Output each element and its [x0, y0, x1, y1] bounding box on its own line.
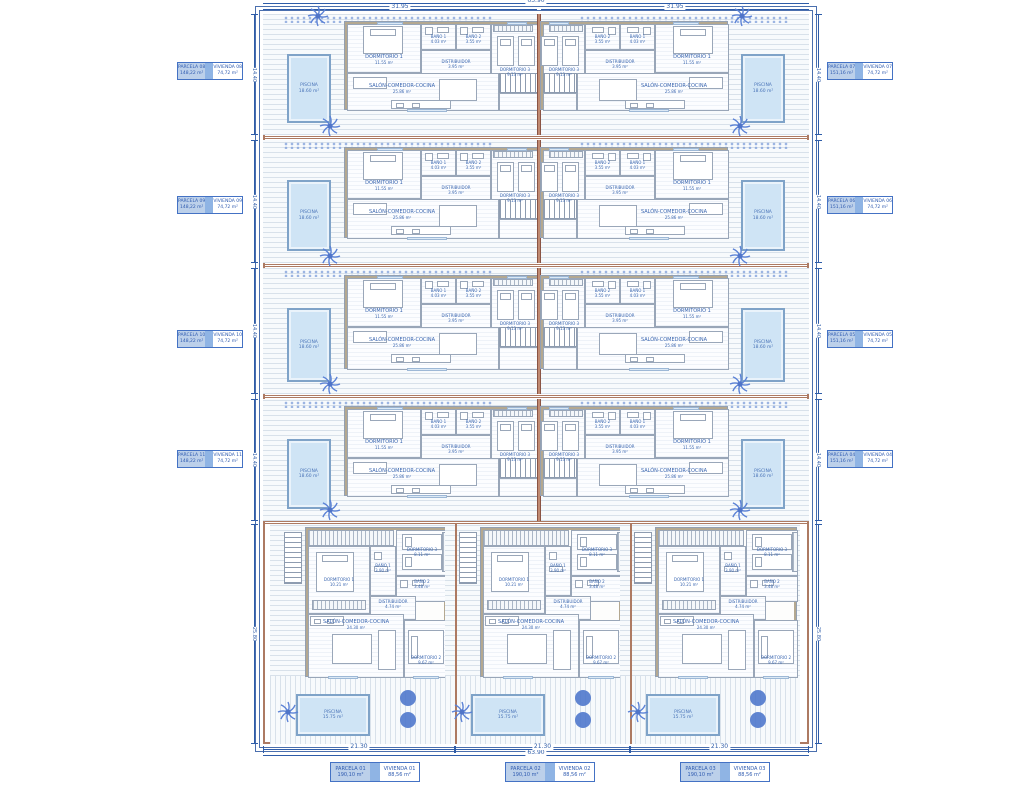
- vivienda-area: 74,72 m²: [213, 205, 242, 211]
- wardrobe-icon: [549, 25, 583, 32]
- room-area: 24.30 m²: [485, 626, 577, 631]
- sink-icon: [437, 153, 449, 159]
- room-area: 10.21 m²: [308, 583, 370, 588]
- palm-tree-icon: [318, 244, 342, 268]
- dim-left-row-4-tick: [251, 520, 258, 521]
- dining-table-icon: [507, 634, 547, 664]
- parcela-area: 190,10 m²: [506, 772, 545, 779]
- double-bed-icon: [673, 280, 713, 308]
- room-area: 3.55 m²: [585, 294, 620, 299]
- pool-label: PISCINA18.60 m²: [753, 340, 774, 351]
- dim-right-row-4-tick: [815, 520, 822, 521]
- shower-icon: [592, 153, 604, 159]
- palm-tree-icon: [728, 114, 752, 138]
- wardrobe-icon: [493, 410, 533, 417]
- room-label: DORMITORIO 29.67 m²: [579, 656, 623, 666]
- house: DORMITORIO 111.55 m²BAÑO 14.03 m²BAÑO 23…: [541, 148, 727, 237]
- window: [377, 22, 403, 25]
- wardrobe-icon: [662, 600, 716, 610]
- parcel-label-left-2: PARCELA 09148,22 m²VIVIENDA 0974,72 m²: [177, 196, 243, 214]
- vivienda-area: 74,72 m²: [863, 339, 892, 345]
- dim-right-row-5-tick: [815, 743, 822, 744]
- room-label: DORMITORIO 111.55 m²: [657, 309, 727, 319]
- dim-left-row-5-tick: [251, 743, 258, 744]
- house: DORMITORIO 110.21 m²BAÑO 13.90 m²DORMITO…: [481, 528, 621, 676]
- palm-tree-icon: [730, 4, 754, 28]
- dim-bottom-seg-3-label: 21.30: [709, 744, 730, 750]
- twin-bed-icon: [497, 36, 514, 66]
- house: DORMITORIO 110.21 m²BAÑO 13.90 m²DORMITO…: [306, 528, 446, 676]
- label-spacer: [720, 763, 730, 781]
- terrace-door: [629, 237, 669, 240]
- pool: PISCINA15.75 m²: [646, 694, 720, 736]
- room-label: DORMITORIO 39.13 m²: [491, 322, 539, 332]
- wardrobe-icon: [493, 25, 533, 32]
- parcela-cell: PARCELA 03190,10 m²: [681, 763, 720, 781]
- label-spacer: [205, 331, 213, 347]
- room-area: 3.95 m²: [585, 450, 655, 455]
- pool: PISCINA18.60 m²: [741, 180, 785, 251]
- round-tree-icon: [575, 690, 591, 706]
- twin-bed-icon: [562, 36, 579, 66]
- vivienda-cell: VIVIENDA 0474,72 m²: [863, 451, 892, 467]
- room-label: DISTRIBUIDOR3.95 m²: [421, 445, 491, 455]
- palm-tree-icon: [318, 498, 342, 522]
- dim-right-row-1-label: 14.40: [815, 67, 820, 81]
- room-area: 4.03 m²: [421, 40, 456, 45]
- dim-left-row-1-tick: [251, 14, 258, 15]
- vivienda-area: 74,72 m²: [213, 71, 242, 77]
- room-area: 25.86 m²: [629, 90, 719, 95]
- room-lavadero: [499, 93, 539, 111]
- parcela-cell: PARCELA 02190,10 m²: [506, 763, 545, 781]
- pool-label: PISCINA18.60 m²: [299, 210, 320, 221]
- pool-label: PISCINA18.60 m²: [753, 210, 774, 221]
- house: DORMITORIO 110.21 m²BAÑO 13.90 m²DORMITO…: [656, 528, 796, 676]
- twin-bed-icon: [518, 421, 535, 451]
- site-plan-canvas: 63.90 31.95 31.95 63.90 PISCINA18.60 m²D…: [0, 0, 1024, 800]
- room-label: DORMITORIO 111.55 m²: [349, 55, 419, 65]
- dim-left-row-3-tick: [251, 393, 258, 394]
- room-lavadero: [543, 93, 577, 111]
- parcela-area: 151,16 m²: [828, 339, 855, 345]
- shower-icon: [592, 27, 604, 33]
- twin-bed-icon: [562, 162, 579, 192]
- room-label: DORMITORIO 111.55 m²: [657, 440, 727, 450]
- room-area: 11.55 m²: [657, 61, 727, 66]
- room-area: 4.03 m²: [620, 425, 655, 430]
- toilet-icon: [724, 552, 732, 560]
- terrace-door: [678, 676, 708, 679]
- room-area: 3.90 m²: [545, 569, 571, 574]
- sink-icon: [627, 412, 639, 418]
- room-label: BAÑO 14.03 m²: [421, 289, 456, 299]
- room-area: 9.13 m²: [491, 458, 539, 463]
- dim-label-bottom-overall: 63.90: [525, 750, 546, 756]
- parcela-cell: PARCELA 01190,10 m²: [331, 763, 370, 781]
- twin-bed-icon: [541, 421, 558, 451]
- room-label: DISTRIBUIDOR3.95 m²: [421, 186, 491, 196]
- palm-tree-icon: [306, 4, 330, 28]
- room-area: 9.13 m²: [491, 327, 539, 332]
- palm-tree-icon: [276, 700, 300, 724]
- vivienda-area: 74,72 m²: [213, 459, 242, 465]
- entry-porch: [658, 530, 744, 546]
- dim-left-row-2-tick: [251, 140, 258, 141]
- window: [549, 148, 569, 151]
- room-label: BAÑO 14.03 m²: [620, 35, 655, 45]
- shower-icon: [472, 153, 484, 159]
- window: [507, 276, 527, 279]
- room-area: 24.30 m²: [310, 626, 402, 631]
- room-label: SALÓN-COMEDOR-COCINA25.86 m²: [629, 338, 719, 348]
- room-label: DISTRIBUIDOR3.95 m²: [585, 445, 655, 455]
- room-label: SALÓN-COMEDOR-COCINA25.86 m²: [629, 210, 719, 220]
- room-label: DORMITORIO 38.11 m²: [396, 548, 448, 558]
- twin-bed-icon: [541, 36, 558, 66]
- window: [549, 407, 569, 410]
- dim-left-row-4-tick: [251, 399, 258, 400]
- toilet-icon: [549, 552, 557, 560]
- room-area: 3.95 m²: [585, 65, 655, 70]
- room-area: 9.13 m²: [543, 458, 585, 463]
- dim-right-row-1-tick: [815, 14, 822, 15]
- double-bed-icon: [363, 280, 403, 308]
- label-spacer: [855, 331, 863, 347]
- room-label: BAÑO 23.55 m²: [456, 161, 491, 171]
- dim-left-row-3-label: 14.40: [251, 324, 256, 338]
- room-lavadero: [499, 478, 539, 497]
- vivienda-cell: VIVIENDA 0674,72 m²: [863, 197, 892, 213]
- parcela-cell: PARCELA 09148,22 m²: [178, 197, 205, 213]
- vivienda-cell: VIVIENDA 0288,56 m²: [555, 763, 594, 781]
- pool: PISCINA18.60 m²: [741, 54, 785, 123]
- room-label: BAÑO 23.55 m²: [585, 35, 620, 45]
- label-spacer: [855, 197, 863, 213]
- double-bed-icon: [673, 411, 713, 439]
- room-area: 3.55 m²: [456, 40, 491, 45]
- window: [549, 276, 569, 279]
- palm-tree-icon: [318, 114, 342, 138]
- room-label: DORMITORIO 39.13 m²: [491, 68, 539, 78]
- upper-unit: PISCINA18.60 m²DORMITORIO 111.55 m²BAÑO …: [263, 268, 537, 394]
- room-label: BAÑO 14.03 m²: [421, 35, 456, 45]
- double-bed-icon: [363, 26, 403, 54]
- vivienda-area: 88,56 m²: [380, 772, 419, 779]
- room-label: BAÑO 23.55 m²: [585, 420, 620, 430]
- room-area: 25.86 m²: [357, 90, 447, 95]
- room-area: 9.67 m²: [404, 661, 448, 666]
- window: [377, 148, 403, 151]
- room-label: DISTRIBUIDOR4.74 m²: [720, 600, 766, 610]
- upper-unit: PISCINA18.60 m²DORMITORIO 111.55 m²BAÑO …: [541, 140, 809, 263]
- vivienda-area: 74,72 m²: [213, 339, 242, 345]
- room-area: 8.11 m²: [746, 553, 798, 558]
- room-area: 3.95 m²: [585, 191, 655, 196]
- dim-left-row-4-label: 14.40: [251, 453, 256, 467]
- window: [507, 22, 527, 25]
- room-area: 3.48 m²: [396, 585, 448, 590]
- sofa-icon: [378, 630, 396, 670]
- label-spacer: [205, 63, 213, 79]
- window: [549, 22, 569, 25]
- dim-right-row-2-label: 14.40: [815, 194, 820, 208]
- parcel-label-left-3: PARCELA 10148,22 m²VIVIENDA 1074,72 m²: [177, 330, 243, 348]
- pool-label: PISCINA18.60 m²: [753, 469, 774, 480]
- room-area: 9.13 m²: [543, 327, 585, 332]
- room-area: 4.03 m²: [421, 425, 456, 430]
- pool-label: PISCINA15.75 m²: [498, 710, 519, 721]
- room-area: 11.55 m²: [657, 315, 727, 320]
- room-label: DORMITORIO 39.13 m²: [543, 68, 585, 78]
- terrace-door: [407, 109, 447, 112]
- room-label: DISTRIBUIDOR4.74 m²: [370, 600, 416, 610]
- dim-right-row-4-label: 14.40: [815, 453, 820, 467]
- room-label: DORMITORIO 111.55 m²: [349, 440, 419, 450]
- room-area: 3.55 m²: [456, 294, 491, 299]
- pool-label: PISCINA18.60 m²: [299, 469, 320, 480]
- parcela-area: 190,10 m²: [331, 772, 370, 779]
- round-tree-icon: [400, 690, 416, 706]
- room-label: SALÓN-COMEDOR-COCINA25.86 m²: [357, 469, 447, 479]
- room-label: SALÓN-COMEDOR-COCINA25.86 m²: [357, 338, 447, 348]
- label-spacer: [205, 451, 213, 467]
- round-tree-icon: [750, 690, 766, 706]
- room-area: 4.74 m²: [720, 605, 766, 610]
- shower-icon: [592, 281, 604, 287]
- double-bed-icon: [363, 152, 403, 180]
- shower-icon: [592, 412, 604, 418]
- window: [673, 407, 699, 410]
- room-label: SALÓN-COMEDOR-COCINA24.30 m²: [310, 620, 402, 630]
- room-area: 4.03 m²: [620, 294, 655, 299]
- room-area: 3.95 m²: [421, 319, 491, 324]
- room-label: BAÑO 23.55 m²: [585, 161, 620, 171]
- room-label: DORMITORIO 29.67 m²: [404, 656, 448, 666]
- dim-left-row-2-label: 14.40: [251, 194, 256, 208]
- room-label: BAÑO 23.55 m²: [456, 35, 491, 45]
- room-lavadero: [543, 478, 577, 497]
- room-label: SALÓN-COMEDOR-COCINA24.30 m²: [485, 620, 577, 630]
- entry-porch: [483, 530, 569, 546]
- window: [377, 407, 403, 410]
- parcela-cell: PARCELA 05151,16 m²: [828, 331, 855, 347]
- room-area: 3.95 m²: [585, 319, 655, 324]
- room-label: DORMITORIO 111.55 m²: [349, 181, 419, 191]
- palm-tree-icon: [450, 700, 474, 724]
- shower-icon: [472, 27, 484, 33]
- pool: PISCINA18.60 m²: [287, 308, 331, 382]
- kitchen-counter-icon: [391, 226, 451, 235]
- wardrobe-icon: [487, 600, 541, 610]
- room-label: BAÑO 13.90 m²: [545, 564, 571, 574]
- room-label: DISTRIBUIDOR3.95 m²: [585, 186, 655, 196]
- room-area: 3.48 m²: [571, 585, 623, 590]
- room-area: 4.74 m²: [370, 605, 416, 610]
- room-area: 9.13 m²: [543, 199, 585, 204]
- shower-icon: [472, 412, 484, 418]
- room-area: 3.55 m²: [585, 425, 620, 430]
- room-area: 3.90 m²: [370, 569, 396, 574]
- room-label: DORMITORIO 39.13 m²: [491, 453, 539, 463]
- room-label: DORMITORIO 111.55 m²: [657, 181, 727, 191]
- palm-tree-icon: [728, 244, 752, 268]
- pool-label: PISCINA15.75 m²: [323, 710, 344, 721]
- room-label: BAÑO 23.55 m²: [585, 289, 620, 299]
- parcela-area: 148,22 m²: [178, 205, 205, 211]
- wardrobe-icon: [549, 151, 583, 158]
- room-area: 8.11 m²: [571, 553, 623, 558]
- room-area: 3.55 m²: [456, 166, 491, 171]
- terrace-door: [503, 676, 533, 679]
- parcela-area: 151,16 m²: [828, 71, 855, 77]
- room-area: 3.95 m²: [421, 191, 491, 196]
- room-label: DORMITORIO 111.55 m²: [349, 309, 419, 319]
- vivienda-cell: VIVIENDA 0188,56 m²: [380, 763, 419, 781]
- twin-bed-icon: [541, 162, 558, 192]
- parcela-cell: PARCELA 06151,16 m²: [828, 197, 855, 213]
- double-bed-icon: [363, 411, 403, 439]
- room-label: DORMITORIO 39.13 m²: [543, 194, 585, 204]
- sink-icon: [627, 153, 639, 159]
- room-label: BAÑO 14.03 m²: [620, 161, 655, 171]
- twin-bed-icon: [497, 421, 514, 451]
- label-spacer: [370, 763, 380, 781]
- room-area: 4.03 m²: [620, 166, 655, 171]
- sofa-icon: [728, 630, 746, 670]
- vivienda-cell: VIVIENDA 1074,72 m²: [213, 331, 242, 347]
- house: DORMITORIO 111.55 m²BAÑO 14.03 m²BAÑO 23…: [541, 276, 727, 368]
- wardrobe-icon: [493, 151, 533, 158]
- upper-unit: PISCINA18.60 m²DORMITORIO 111.55 m²BAÑO …: [541, 14, 809, 135]
- window: [763, 676, 789, 679]
- house: DORMITORIO 111.55 m²BAÑO 14.03 m²BAÑO 23…: [345, 148, 537, 237]
- twin-bed-icon: [497, 162, 514, 192]
- dim-bottom-seg-1-tick: [263, 746, 264, 753]
- pool-label: PISCINA18.60 m²: [299, 340, 320, 351]
- room-area: 3.55 m²: [585, 40, 620, 45]
- upper-unit: PISCINA18.60 m²DORMITORIO 111.55 m²BAÑO …: [263, 14, 537, 135]
- twin-bed-icon: [497, 290, 514, 320]
- kitchen-counter-icon: [391, 354, 451, 363]
- upper-unit: PISCINA18.60 m²DORMITORIO 111.55 m²BAÑO …: [541, 399, 809, 521]
- sink-icon: [437, 281, 449, 287]
- room-area: 9.67 m²: [754, 661, 798, 666]
- parcela-area: 190,10 m²: [681, 772, 720, 779]
- dim-left-row-3-tick: [251, 268, 258, 269]
- room-area: 4.74 m²: [545, 605, 591, 610]
- pool: PISCINA18.60 m²: [741, 308, 785, 382]
- vivienda-area: 88,56 m²: [730, 772, 769, 779]
- double-bed-icon: [673, 152, 713, 180]
- palm-tree-icon: [728, 498, 752, 522]
- dim-left-row-1-tick: [251, 134, 258, 135]
- dim-label-top-overall: 63.90: [525, 0, 546, 4]
- exterior-stairs: [459, 532, 477, 584]
- wardrobe-icon: [312, 600, 366, 610]
- window: [673, 148, 699, 151]
- room-area: 10.21 m²: [483, 583, 545, 588]
- room-area: 8.11 m²: [396, 553, 448, 558]
- room-label: DORMITORIO 39.13 m²: [543, 453, 585, 463]
- window: [413, 676, 439, 679]
- pool-label: PISCINA18.60 m²: [753, 83, 774, 94]
- sink-icon: [627, 281, 639, 287]
- dim-bottom-seg-1-label: 21.30: [348, 744, 369, 750]
- room-label: DORMITORIO 38.11 m²: [746, 548, 798, 558]
- dim-right-row-2-tick: [815, 140, 822, 141]
- room-area: 11.55 m²: [349, 446, 419, 451]
- room-label: SALÓN-COMEDOR-COCINA25.86 m²: [357, 84, 447, 94]
- round-tree-icon: [575, 712, 591, 728]
- room-area: 11.55 m²: [349, 61, 419, 66]
- dim-right-row-3-label: 14.40: [815, 324, 820, 338]
- room-area: 25.86 m²: [357, 216, 447, 221]
- parcela-cell: PARCELA 11148,22 m²: [178, 451, 205, 467]
- room-label: DISTRIBUIDOR4.74 m²: [545, 600, 591, 610]
- room-area: 3.95 m²: [421, 450, 491, 455]
- room-area: 25.86 m²: [629, 216, 719, 221]
- dim-right-row-1-tick: [815, 134, 822, 135]
- parcela-area: 151,16 m²: [828, 459, 855, 465]
- parcel-label-right-1: PARCELA 07151,16 m²VIVIENDA 0774,72 m²: [827, 62, 893, 80]
- room-area: 25.86 m²: [357, 344, 447, 349]
- kitchen-counter-icon: [391, 100, 451, 109]
- room-area: 4.03 m²: [421, 166, 456, 171]
- terrace-door: [328, 676, 358, 679]
- dim-right-row-5-label: 25.80: [815, 627, 820, 641]
- dim-right-row-2-tick: [815, 262, 822, 263]
- kitchen-counter-icon: [625, 485, 685, 494]
- room-label: DISTRIBUIDOR3.95 m²: [585, 314, 655, 324]
- room-label: BAÑO 23.55 m²: [456, 289, 491, 299]
- room-area: 3.55 m²: [456, 425, 491, 430]
- room-area: 11.55 m²: [349, 315, 419, 320]
- round-tree-icon: [750, 712, 766, 728]
- room-label: BAÑO 23.48 m²: [571, 580, 623, 590]
- vivienda-area: 74,72 m²: [863, 71, 892, 77]
- house: DORMITORIO 111.55 m²BAÑO 14.03 m²BAÑO 23…: [541, 407, 727, 495]
- room-label: DORMITORIO 39.13 m²: [543, 322, 585, 332]
- room-area: 11.55 m²: [349, 187, 419, 192]
- house: DORMITORIO 111.55 m²BAÑO 14.03 m²BAÑO 23…: [345, 407, 537, 495]
- house: DORMITORIO 111.55 m²BAÑO 14.03 m²BAÑO 23…: [541, 22, 727, 109]
- room-area: 25.86 m²: [629, 475, 719, 480]
- parcela-area: 148,22 m²: [178, 71, 205, 77]
- vivienda-area: 74,72 m²: [863, 205, 892, 211]
- toilet-icon: [374, 552, 382, 560]
- room-area: 9.13 m²: [491, 199, 539, 204]
- dim-bottom-seg-2-tick: [455, 746, 456, 753]
- twin-bed-icon: [518, 36, 535, 66]
- exterior-stairs: [284, 532, 302, 584]
- parcel-label-right-3: PARCELA 05151,16 m²VIVIENDA 0574,72 m²: [827, 330, 893, 348]
- vivienda-area: 88,56 m²: [555, 772, 594, 779]
- dim-bottom-seg-3-tick: [808, 746, 809, 753]
- label-spacer: [205, 197, 213, 213]
- dim-label-top-right-half: 31.95: [664, 4, 685, 10]
- vivienda-cell: VIVIENDA 0974,72 m²: [213, 197, 242, 213]
- parcela-area: 148,22 m²: [178, 459, 205, 465]
- room-label: DORMITORIO 39.13 m²: [491, 194, 539, 204]
- terrace-door: [629, 109, 669, 112]
- kitchen-counter-icon: [625, 100, 685, 109]
- room-label: DORMITORIO 111.55 m²: [657, 55, 727, 65]
- pool-label: PISCINA18.60 m²: [299, 83, 320, 94]
- room-label: SALÓN-COMEDOR-COCINA24.30 m²: [660, 620, 752, 630]
- room-label: SALÓN-COMEDOR-COCINA25.86 m²: [629, 84, 719, 94]
- dim-right-row-4-tick: [815, 399, 822, 400]
